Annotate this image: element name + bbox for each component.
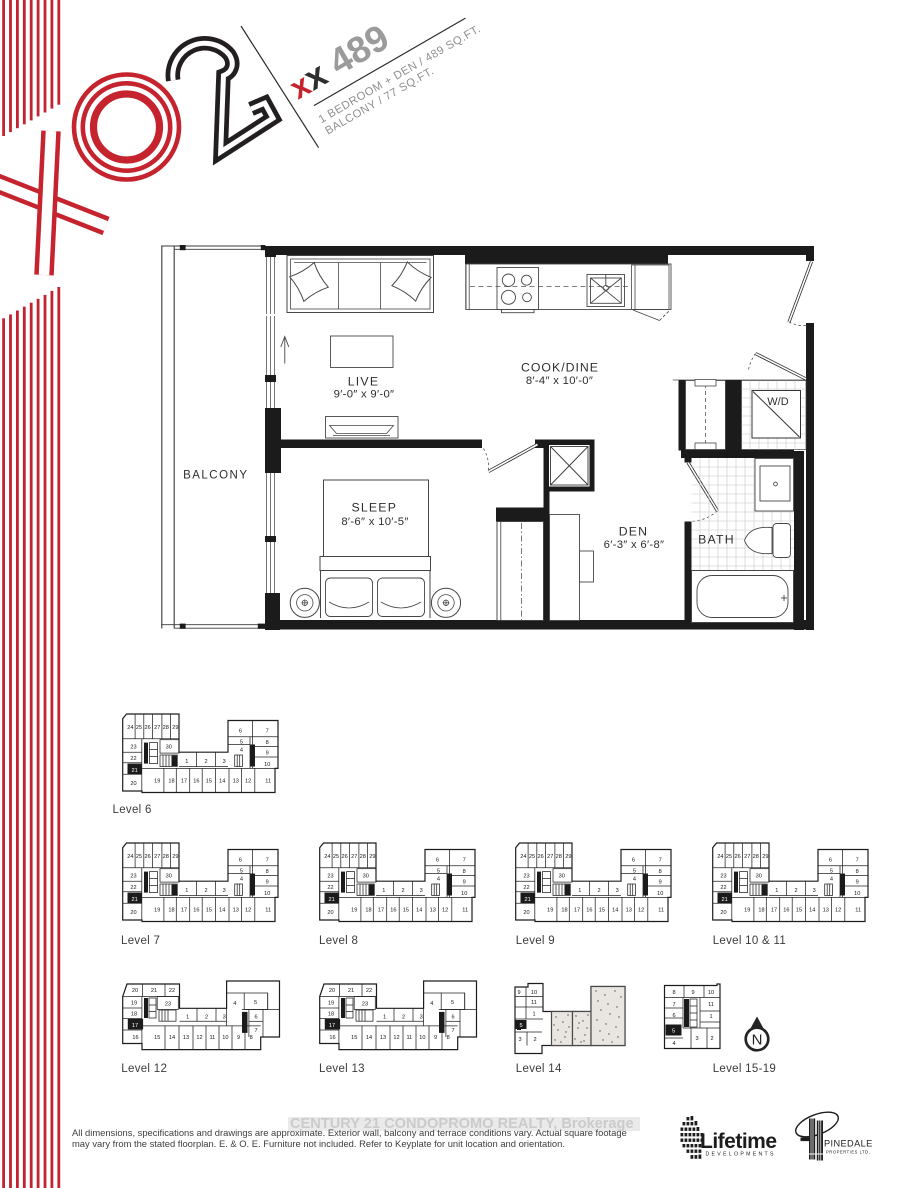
svg-text:DEVELOPMENTS: DEVELOPMENTS [706,1152,776,1158]
svg-text:BALCONY: BALCONY [183,470,248,482]
svg-text:PINEDALE: PINEDALE [824,1139,873,1149]
svg-text:489: 489 [322,16,396,82]
svg-text:8′-6″ x 10′-5″: 8′-6″ x 10′-5″ [341,516,408,528]
svg-text:BATH: BATH [698,533,735,547]
svg-text:6′-3″ x 6′-8″: 6′-3″ x 6′-8″ [604,539,665,551]
svg-text:8′-4″ x 10′-0″: 8′-4″ x 10′-0″ [526,375,593,387]
svg-text:N: N [752,1032,763,1049]
svg-text:PROPERTIES LTD.: PROPERTIES LTD. [826,1150,870,1155]
svg-text:LIVE: LIVE [348,375,379,389]
svg-text:9′-0″ x 9′-0″: 9′-0″ x 9′-0″ [334,389,395,401]
svg-text:W/D: W/D [767,396,788,408]
svg-text:COOK/DINE: COOK/DINE [521,361,599,375]
svg-text:SLEEP: SLEEP [351,501,397,515]
svg-text:Lifetime: Lifetime [700,1130,777,1153]
svg-text:DEN: DEN [619,525,649,539]
